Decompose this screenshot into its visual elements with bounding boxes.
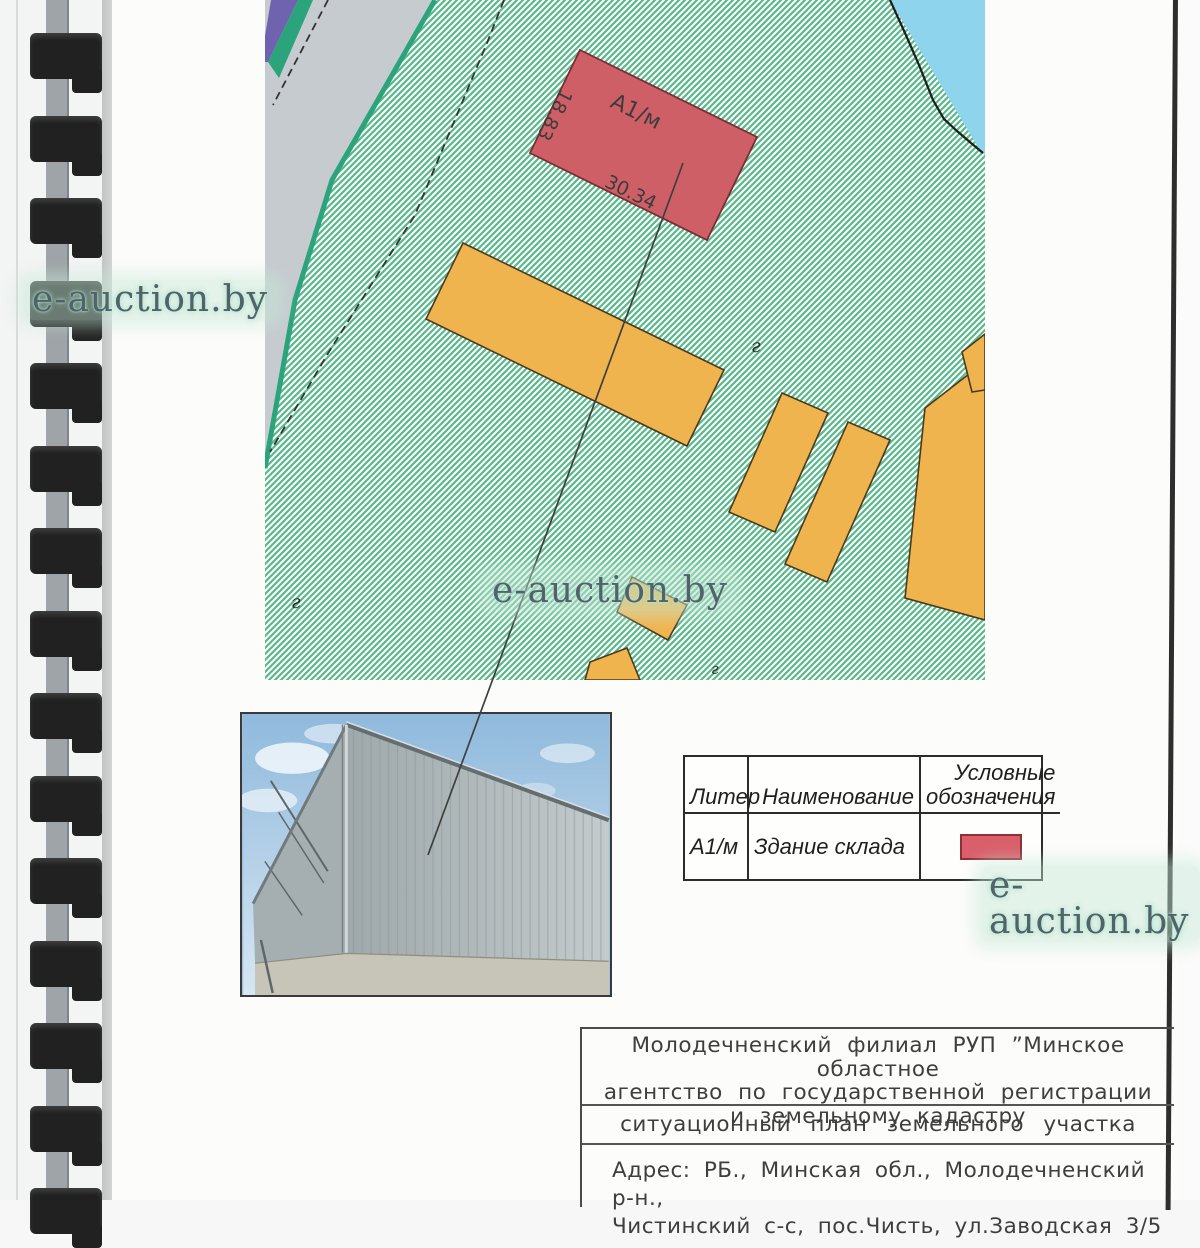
watermark-right: e-auction.by — [981, 866, 1200, 942]
legend-header-name: Наименование — [749, 757, 921, 814]
binding-tooth-tab — [72, 482, 102, 506]
binding-tooth — [30, 611, 102, 657]
binding-tooth-tab — [72, 1059, 102, 1083]
binding-tooth-tab — [72, 647, 102, 671]
address-line2: Чистинский с-с, пос.Чисть, ул.Заводская … — [612, 1213, 1174, 1241]
binding-tooth-tab — [72, 1142, 102, 1166]
binding-tooth — [30, 33, 102, 79]
title-block: Молодечненский филиал РУП ”Минское облас… — [580, 1027, 1174, 1207]
terrain-marker-3: г — [711, 660, 719, 678]
binding-tooth — [30, 776, 102, 822]
binding-tooth — [30, 116, 102, 162]
binding-tooth-tab — [72, 729, 102, 753]
binding-tooth-tab — [72, 812, 102, 836]
binding-tooth — [30, 858, 102, 904]
binding-tooth — [30, 1188, 102, 1234]
legend-header-symbol: Условные обозначения — [921, 757, 1060, 814]
binding-tooth-tab — [72, 977, 102, 1001]
terrain-marker-1: г — [751, 335, 761, 357]
binding-tooth-tab — [72, 317, 102, 341]
terrain-marker-2: г — [291, 591, 301, 613]
document-type: ситуационный план земельного участка — [582, 1106, 1174, 1145]
binding-tooth — [30, 528, 102, 574]
binding-comb — [0, 0, 112, 1200]
binding-tooth-tab — [72, 894, 102, 918]
binding-tooth-tab — [72, 69, 102, 93]
address-line1: Адрес: РБ., Минская обл., Молодечненский… — [612, 1157, 1174, 1213]
legend-row-liter: А1/м — [685, 814, 749, 879]
next-page-edge — [1178, 0, 1200, 1200]
binding-tooth-tab — [72, 152, 102, 176]
binding-tooth-tab — [72, 564, 102, 588]
agency-name: Молодечненский филиал РУП ”Минское облас… — [582, 1029, 1174, 1106]
legend-header-symbol-line2: обозначения — [926, 784, 1055, 809]
binding-tooth — [30, 1023, 102, 1069]
binding-tooth-tab — [72, 234, 102, 258]
legend-red-swatch — [960, 834, 1022, 860]
watermark-middle: e-auction.by — [484, 571, 736, 611]
scanned-document-page: А1/м 30.34 18.83 г г г — [0, 0, 1200, 1200]
binding-tooth — [30, 941, 102, 987]
photo-warehouse — [240, 712, 612, 997]
binding-tooth — [30, 1106, 102, 1152]
legend-row-name: Здание склада — [749, 814, 921, 879]
photo-image — [242, 714, 610, 995]
address-block: Адрес: РБ., Минская обл., Молодечненский… — [582, 1145, 1174, 1241]
binding-tooth — [30, 363, 102, 409]
binding-tooth — [30, 693, 102, 739]
binding-tooth-tab — [72, 1224, 102, 1248]
agency-line1: Молодечненский филиал РУП ”Минское облас… — [582, 1034, 1174, 1081]
legend-table: Литер Наименование Условные обозначения … — [683, 755, 1043, 881]
agency-line2: агентство по государственной регистрации — [582, 1081, 1174, 1105]
watermark-left: e-auction.by — [24, 280, 276, 320]
binding-tooth-tab — [72, 399, 102, 423]
legend-header-liter: Литер — [685, 757, 749, 814]
legend-header-symbol-line1: Условные — [954, 760, 1055, 785]
binding-tooth — [30, 446, 102, 492]
binding-tooth — [30, 198, 102, 244]
